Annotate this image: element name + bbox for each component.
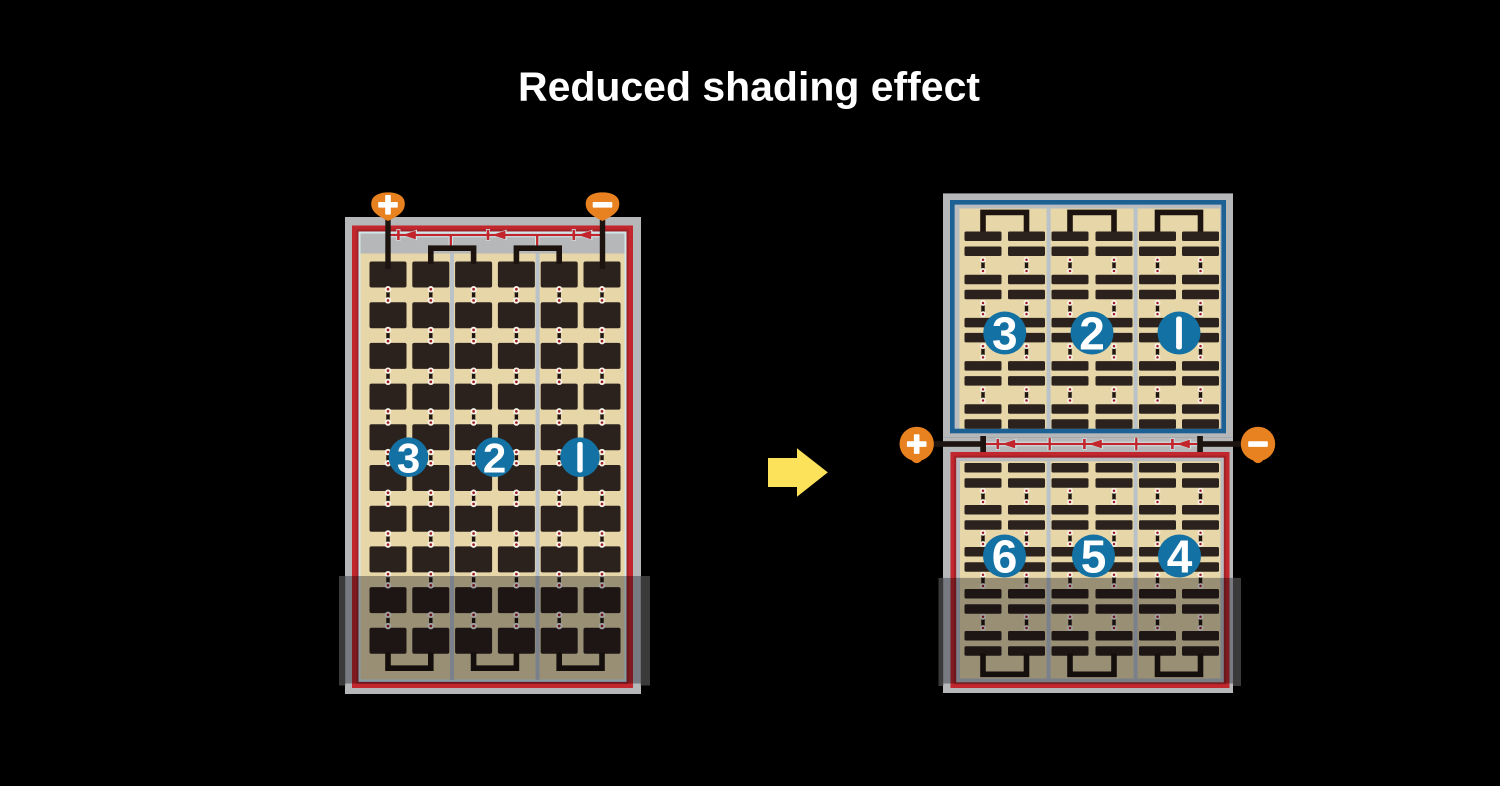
svg-text:5: 5 [1081,531,1107,583]
svg-text:2: 2 [483,434,506,481]
svg-text:4: 4 [1167,531,1193,583]
svg-text:3: 3 [397,434,420,481]
svg-text:2: 2 [1079,308,1105,360]
svg-text:3: 3 [992,308,1018,360]
svg-text:6: 6 [992,531,1018,583]
svg-text:Reduced shading effect: Reduced shading effect [518,64,980,110]
